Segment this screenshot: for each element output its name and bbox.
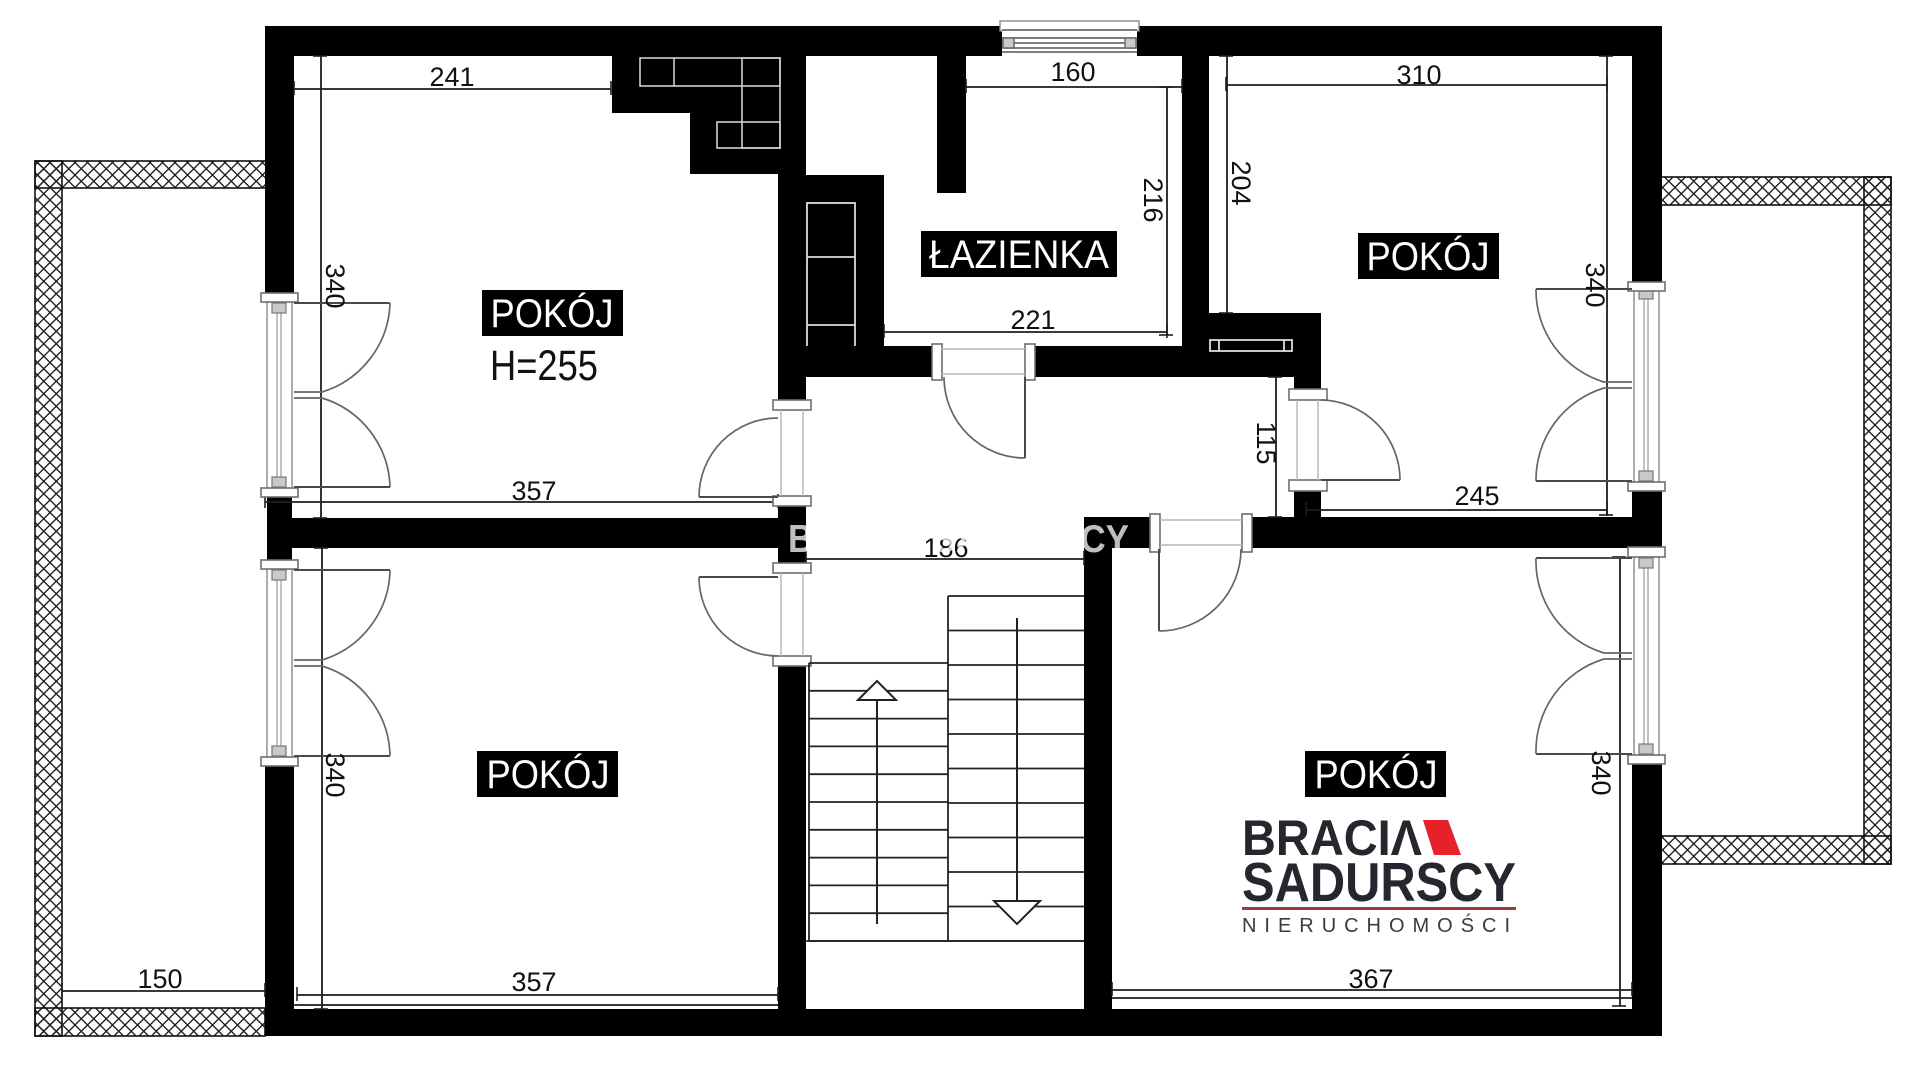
svg-text:H=255: H=255	[490, 342, 598, 390]
svg-text:115: 115	[1251, 421, 1281, 464]
svg-text:NIERUCHOMOŚCI: NIERUCHOMOŚCI	[1242, 913, 1510, 937]
svg-text:ŁAZIENKA: ŁAZIENKA	[929, 233, 1109, 277]
svg-text:POKÓJ: POKÓJ	[1367, 234, 1490, 279]
svg-text:POKÓJ: POKÓJ	[491, 291, 614, 336]
svg-text:160: 160	[1050, 57, 1095, 87]
svg-text:340: 340	[320, 752, 350, 797]
svg-text:340: 340	[1586, 750, 1616, 795]
svg-text:310: 310	[1396, 60, 1441, 90]
svg-text:357: 357	[511, 476, 556, 506]
svg-text:245: 245	[1454, 481, 1499, 511]
svg-text:SADURSCY: SADURSCY	[1242, 851, 1516, 913]
svg-text:367: 367	[1348, 964, 1393, 994]
svg-text:241: 241	[429, 62, 474, 92]
svg-text:216: 216	[1138, 177, 1168, 222]
svg-text:BRACIA SADURSCY: BRACIA SADURSCY	[788, 518, 1129, 561]
svg-text:POKÓJ: POKÓJ	[487, 752, 610, 797]
svg-text:221: 221	[1010, 305, 1055, 335]
svg-text:340: 340	[320, 263, 350, 308]
svg-text:150: 150	[137, 964, 182, 994]
svg-text:340: 340	[1580, 262, 1610, 307]
svg-text:357: 357	[511, 967, 556, 997]
svg-text:POKÓJ: POKÓJ	[1315, 752, 1438, 797]
svg-text:204: 204	[1226, 160, 1256, 205]
